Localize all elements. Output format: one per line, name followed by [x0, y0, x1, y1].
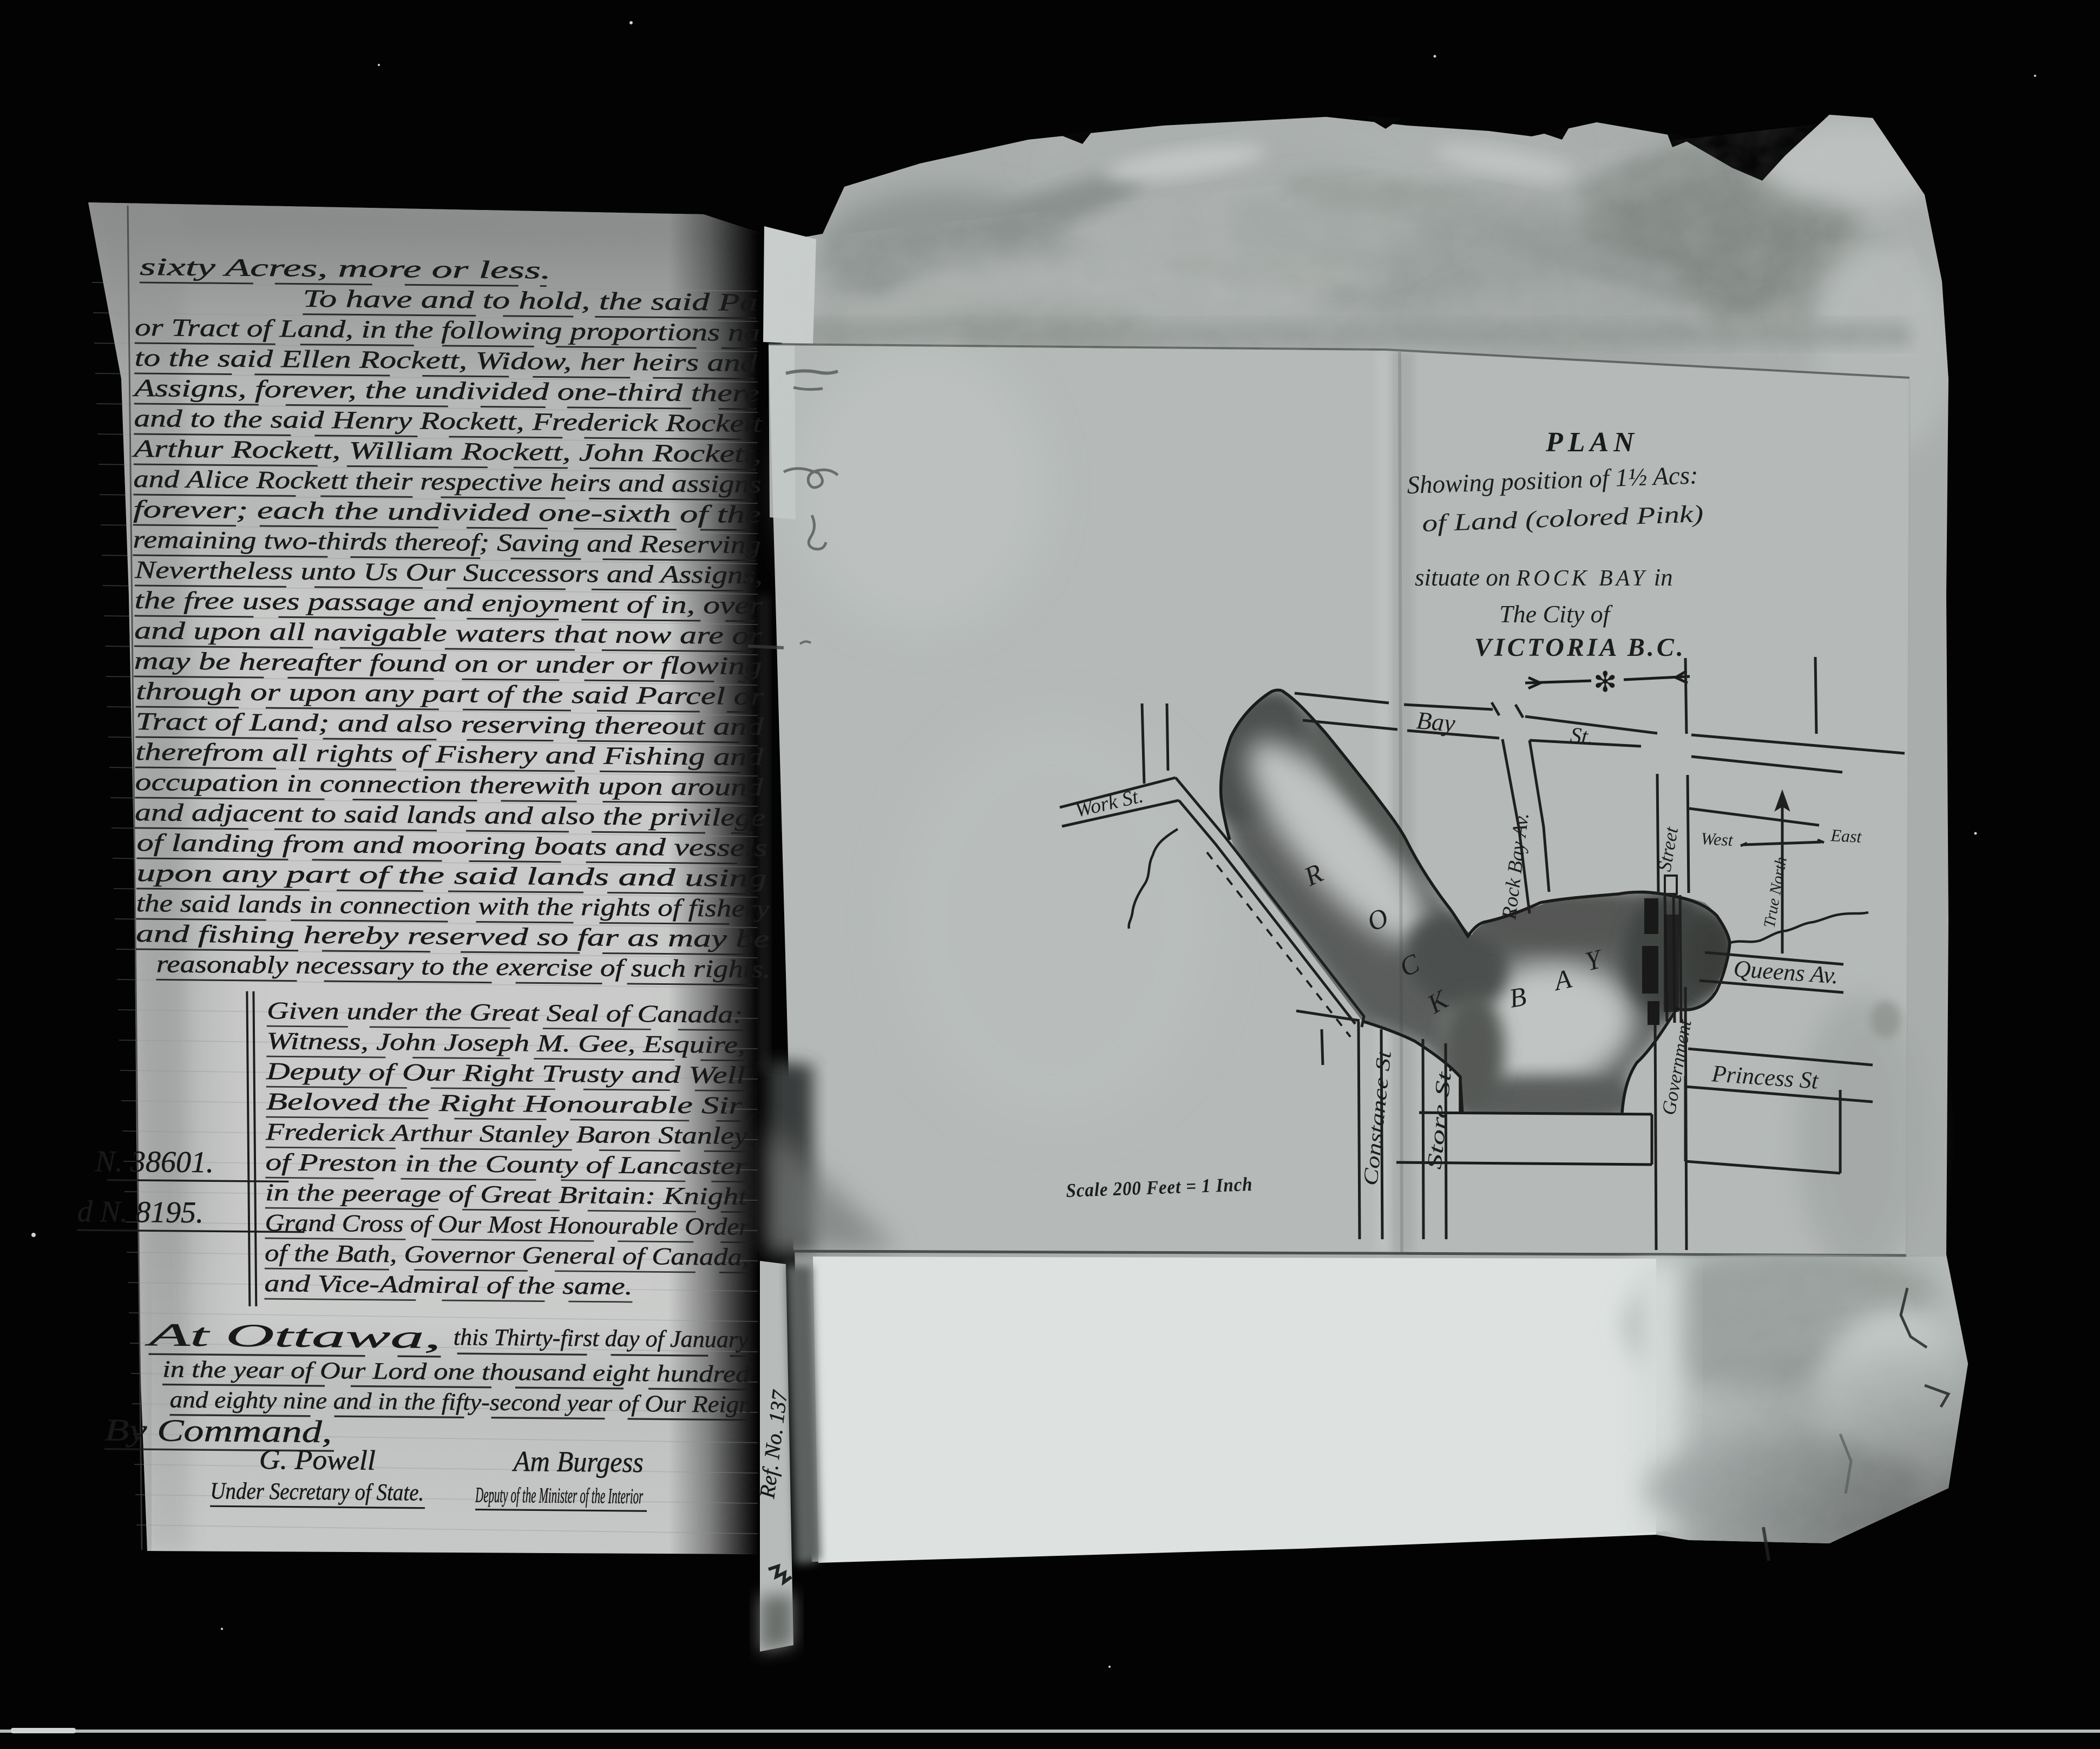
svg-text:VICTORIA B.C.: VICTORIA B.C. [1474, 633, 1686, 662]
svg-text:West: West [1701, 829, 1734, 850]
svg-text:PLAN: PLAN [1545, 427, 1639, 458]
svg-text:East: East [1830, 825, 1863, 846]
svg-text:Bay: Bay [1415, 706, 1456, 737]
svg-text:The City of: The City of [1499, 600, 1613, 628]
svg-text:St.: St. [1569, 723, 1594, 750]
svg-text:✻: ✻ [1593, 667, 1617, 698]
svg-text:situate on ROCK BAY in: situate on ROCK BAY in [1415, 564, 1673, 591]
